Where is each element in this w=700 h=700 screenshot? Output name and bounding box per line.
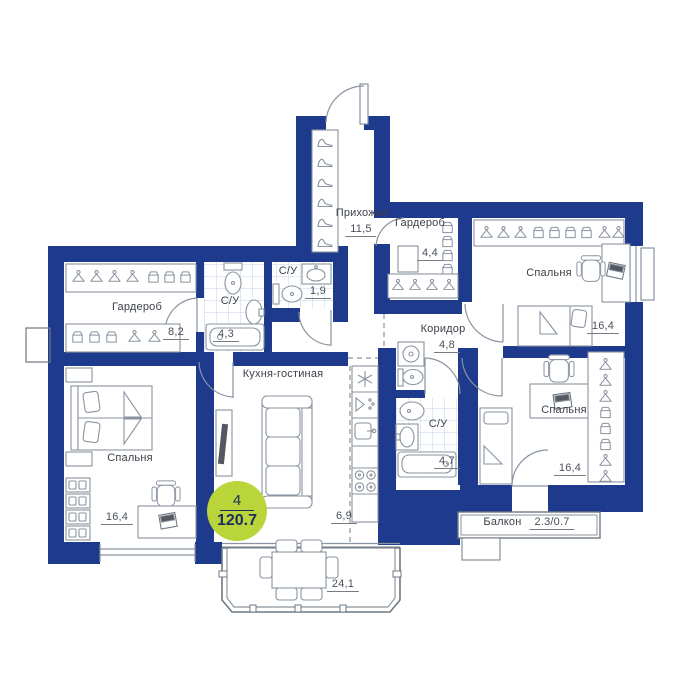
room-area-bedroom-top-right: 16,4 xyxy=(587,320,619,334)
bed-icon xyxy=(518,306,592,346)
washer-icon xyxy=(398,342,424,366)
room-label-bathroom-small: С/У xyxy=(279,265,298,277)
room-label-hallway: Прихожая xyxy=(336,207,389,219)
door-bath-main xyxy=(425,358,460,394)
nightstand-icon xyxy=(66,452,92,466)
room-label-bedroom-bottom-left: Спальня xyxy=(107,452,153,464)
window-bottom-left xyxy=(100,544,195,562)
toilet-icon xyxy=(273,284,302,304)
balcony-area: 2.3/0.7 xyxy=(530,516,575,530)
room-label-wardrobe-entry: Гардероб xyxy=(395,217,445,229)
room-label-bedroom-bottom-right: Спальня xyxy=(541,404,587,416)
room-area-hallway: 11,5 xyxy=(345,223,376,237)
desk-icon xyxy=(138,506,196,538)
room-area-bathroom-main: 4,7 xyxy=(434,455,460,469)
door-bedroom-top-right xyxy=(465,304,503,342)
room-area-kitchen-living: 24,1 xyxy=(327,578,359,592)
chair-icon xyxy=(577,256,605,282)
toilet-icon xyxy=(224,263,242,294)
ac-basket xyxy=(26,328,50,362)
door-balcony xyxy=(512,450,548,486)
room-area-corridor: 4,8 xyxy=(434,339,460,353)
sofa-icon xyxy=(262,396,312,508)
kitchen-appliances xyxy=(352,366,378,522)
kitchen-zone-area: 6,9 xyxy=(331,510,357,524)
wardrobe-rail-icon xyxy=(588,352,624,482)
total-area: 120.7 xyxy=(217,512,257,530)
door-bath-small xyxy=(299,310,331,346)
room-label-wardrobe-left: Гардероб xyxy=(112,301,162,313)
room-area-wardrobe-left: 8,2 xyxy=(163,326,189,340)
chair-icon xyxy=(544,355,574,382)
floor-plan-drawing xyxy=(0,0,700,700)
room-label-corridor: Коридор xyxy=(421,323,466,335)
room-area-bedroom-bottom-left: 16,4 xyxy=(101,511,133,525)
nightstand-icon xyxy=(66,368,92,382)
room-label-balcony: Балкон 2.3/0.7 xyxy=(483,516,574,530)
room-area-bathroom-left: 4,3 xyxy=(213,328,239,342)
room-area-bedroom-bottom-right: 16,4 xyxy=(554,462,586,476)
toilet-icon xyxy=(398,369,423,386)
badge-divider xyxy=(220,510,254,511)
chair-icon xyxy=(152,481,180,506)
tv-unit-icon xyxy=(216,410,232,476)
room-label-bathroom-main: С/У xyxy=(429,418,448,430)
toilet-icon xyxy=(400,402,424,420)
room-area-bathroom-small: 1,9 xyxy=(305,285,331,299)
rooms-count: 4 xyxy=(233,492,241,509)
shoe-cabinet-icon xyxy=(312,130,338,252)
balcony-name: Балкон xyxy=(483,516,521,528)
sink-icon xyxy=(302,264,331,284)
bed-icon xyxy=(71,386,152,450)
bed-icon xyxy=(480,408,512,484)
floor-plan: Прихожая 11,5 Гардероб 4,4 Спальня 16,4 … xyxy=(0,0,700,700)
room-area-wardrobe-entry: 4,4 xyxy=(417,247,443,261)
desk-icon xyxy=(602,244,630,302)
room-label-kitchen-living: Кухня-гостиная xyxy=(243,368,324,380)
room-label-bathroom-left: С/У xyxy=(221,295,240,307)
room-label-bedroom-top-right: Спальня xyxy=(526,267,572,279)
apartment-summary-badge: 4 120.7 xyxy=(207,481,267,541)
wardrobe-rail-icon xyxy=(474,220,624,246)
entrance-door xyxy=(326,84,368,124)
window-east xyxy=(630,246,654,302)
sink-icon xyxy=(396,424,418,450)
shelf-icon xyxy=(66,478,90,540)
